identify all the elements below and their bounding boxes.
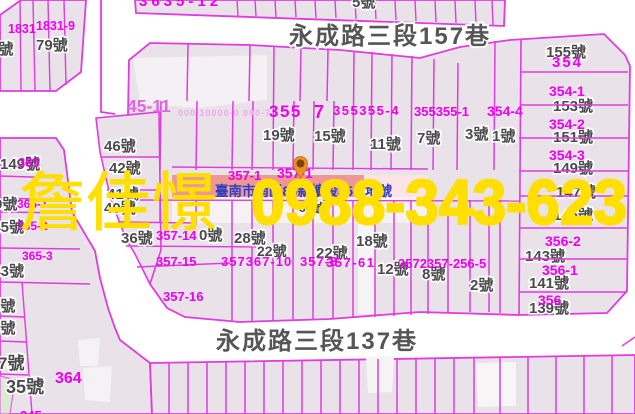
svg-text:364: 364 (55, 370, 82, 387)
svg-text:1831-9: 1831-9 (36, 19, 75, 33)
svg-text:7號: 7號 (0, 354, 24, 373)
svg-text:7號: 7號 (417, 129, 440, 147)
svg-text:9號: 9號 (0, 195, 17, 213)
svg-text:354: 354 (552, 54, 583, 71)
svg-text:8號: 8號 (0, 297, 15, 315)
svg-text:詹佳憬: 詹佳憬 (19, 167, 218, 239)
svg-text:1831: 1831 (0, 22, 1, 36)
svg-text:355355-4: 355355-4 (333, 103, 400, 118)
svg-text:1831: 1831 (8, 22, 36, 36)
svg-text:1號: 1號 (492, 127, 515, 145)
svg-text:356-1: 356-1 (542, 262, 578, 278)
svg-text:357367-10: 357367-10 (221, 254, 292, 269)
svg-text:143號: 143號 (0, 262, 24, 280)
svg-text:354-3: 354-3 (549, 147, 585, 163)
svg-text:355355-1: 355355-1 (414, 104, 469, 119)
svg-text:35號: 35號 (6, 377, 44, 397)
svg-text:356: 356 (538, 292, 562, 308)
svg-text:46號: 46號 (104, 137, 136, 155)
svg-text:000 10000-0 000-7: 000 10000-0 000-7 (178, 108, 271, 118)
svg-text:3號: 3號 (465, 125, 488, 143)
svg-text:3572357-256-5: 3572357-256-5 (398, 256, 486, 271)
svg-text:354-2: 354-2 (549, 116, 585, 132)
svg-text:15號: 15號 (314, 127, 346, 145)
svg-text:357-16: 357-16 (163, 289, 203, 304)
svg-text:7: 7 (314, 102, 324, 122)
svg-text:2號: 2號 (470, 276, 493, 294)
svg-text:357-61: 357-61 (326, 255, 375, 270)
svg-text:5號: 5號 (352, 0, 375, 11)
svg-text:365-3: 365-3 (22, 249, 53, 263)
svg-text:11號: 11號 (370, 135, 401, 153)
svg-text:354-4: 354-4 (487, 103, 523, 119)
svg-text:3號: 3號 (0, 40, 13, 58)
svg-text:357-15: 357-15 (156, 254, 196, 269)
svg-text:345: 345 (20, 408, 42, 414)
svg-text:6號: 6號 (0, 319, 15, 337)
svg-text:355: 355 (269, 102, 302, 121)
svg-text:19號: 19號 (263, 126, 295, 144)
svg-text:3635-12: 3635-12 (139, 0, 222, 10)
svg-text:0988-343-623: 0988-343-623 (251, 168, 627, 238)
svg-text:永成路三段137巷: 永成路三段137巷 (216, 327, 418, 355)
svg-text:79號: 79號 (36, 36, 68, 54)
svg-text:永成路三段157巷: 永成路三段157巷 (289, 22, 491, 50)
svg-text:153號: 153號 (553, 97, 593, 115)
svg-text:45-11: 45-11 (127, 96, 171, 116)
svg-text:354-1: 354-1 (549, 83, 585, 99)
